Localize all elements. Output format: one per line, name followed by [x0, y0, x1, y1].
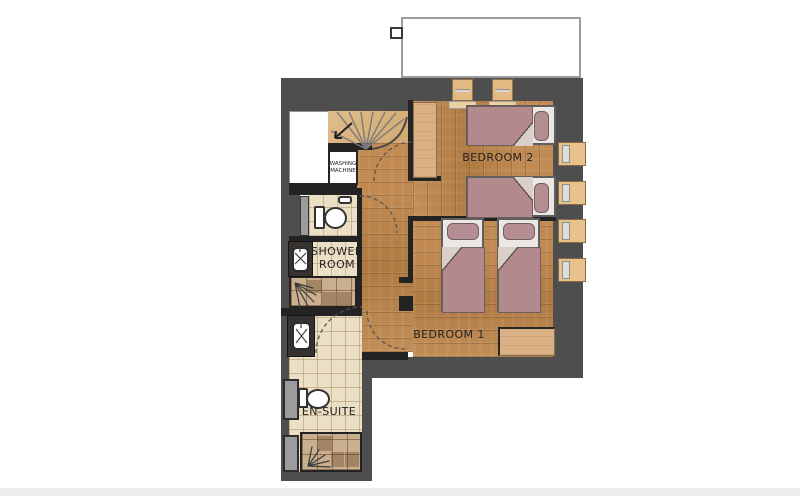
- floor-plan: WASHING MACHINE: [0, 0, 800, 496]
- wall-bedroom1-west-jog: [399, 277, 413, 283]
- shower-tile: [331, 452, 344, 467]
- window-1-glass: [562, 145, 570, 163]
- washing-machine-label-line2: MACHINE: [330, 168, 356, 174]
- shower-tile: [307, 280, 322, 293]
- storage-room: [289, 111, 329, 187]
- showerroom-label: SHOWER ROOM: [309, 245, 365, 271]
- pillow: [534, 183, 549, 213]
- ensuite-shower: [300, 432, 362, 472]
- page-edge: [0, 488, 800, 496]
- bedroom1-label: BEDROOM 1: [389, 328, 509, 341]
- toilet-roll-holder-icon: [338, 196, 352, 204]
- bedroom1-bed-1: [441, 218, 484, 312]
- wall-bottom-ensuite: [281, 472, 372, 481]
- shower-tile: [322, 292, 336, 305]
- showerroom-label-line2: ROOM: [309, 258, 365, 271]
- wall-top-inner: [281, 102, 412, 111]
- duvet-fold: [498, 247, 518, 271]
- showerroom-toilet-icon: [324, 207, 347, 229]
- showerroom-sink-icon: [292, 247, 309, 272]
- duvet-fold: [513, 122, 533, 146]
- wall-bedroom1-west: [408, 220, 413, 280]
- duvet: [442, 247, 485, 313]
- wall-left: [281, 102, 289, 480]
- bedroom2-bed-2: [466, 176, 556, 217]
- wall-bedroom1-door-post: [399, 296, 413, 311]
- duvet-fold: [513, 177, 533, 201]
- window-3-glass: [562, 222, 570, 240]
- washing-machine-label-line1: WASHING: [330, 161, 357, 167]
- shower-tile: [337, 292, 352, 305]
- shower-tile: [345, 452, 359, 467]
- ensuite-window-1: [283, 379, 299, 420]
- duvet: [467, 106, 533, 146]
- wall-top: [281, 78, 583, 102]
- wall-bottom-bedroom1: [357, 357, 583, 378]
- ensuite-label: EN-SUITE: [298, 405, 360, 418]
- bedroom2-label: BEDROOM 2: [438, 151, 558, 164]
- shower-tile: [317, 436, 332, 451]
- ensuite-sink-icon: [292, 322, 311, 350]
- duvet: [467, 177, 533, 218]
- washing-machine: WASHING MACHINE: [328, 150, 358, 185]
- balcony-door-2: [492, 79, 513, 101]
- wall-under-stairs: [328, 143, 372, 150]
- corridor-floor: [357, 143, 413, 352]
- window-4-glass: [562, 261, 570, 279]
- window-2-glass: [562, 184, 570, 202]
- pillow: [503, 223, 535, 240]
- wall-corridor-south: [362, 352, 408, 360]
- pillow: [534, 111, 549, 141]
- wall-right-ensuite: [362, 378, 372, 476]
- storage-door: [300, 196, 309, 236]
- balcony-outline: [401, 17, 581, 78]
- bedroom1-bed-2: [497, 218, 540, 312]
- duvet: [498, 247, 541, 313]
- wall-left-thick: [281, 188, 300, 238]
- pillow: [447, 223, 479, 240]
- showerroom-shower: [289, 276, 357, 308]
- staircase: [328, 111, 408, 143]
- bedroom2-wardrobe: [413, 102, 437, 178]
- duvet-fold: [442, 247, 462, 271]
- balcony-notch: [390, 27, 403, 39]
- balcony-door-1: [452, 79, 473, 101]
- ensuite-window-2: [283, 435, 299, 472]
- showerroom-label-line1: SHOWER: [309, 245, 365, 258]
- bedroom2-bed-1: [466, 105, 556, 145]
